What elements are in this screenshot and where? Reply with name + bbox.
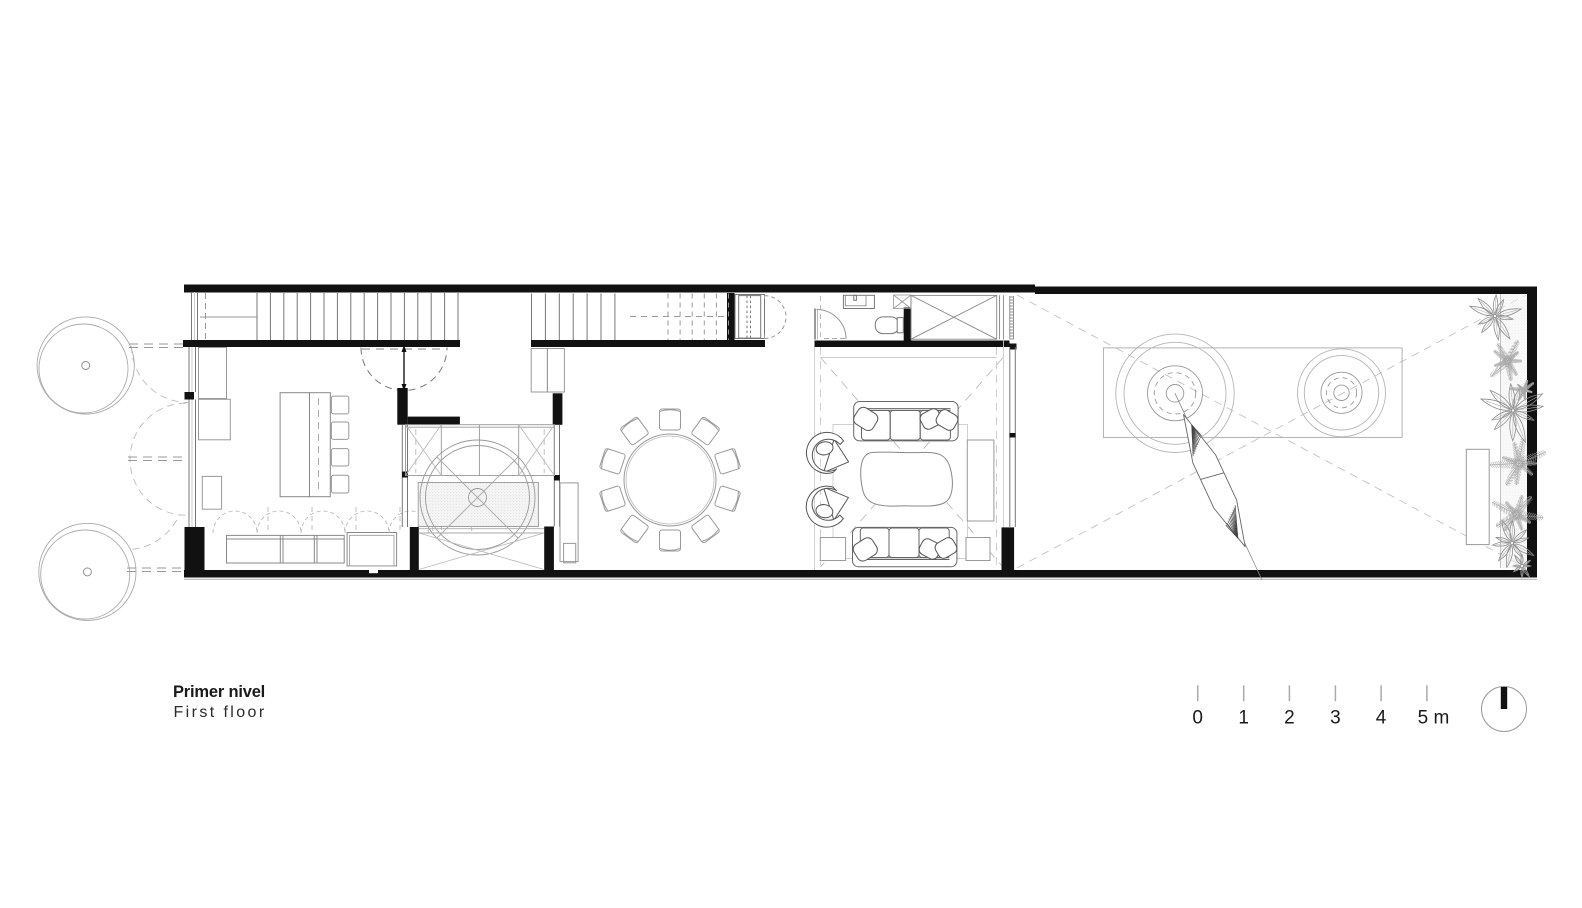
- svg-text:First floor: First floor: [174, 704, 267, 721]
- svg-text:0: 0: [1192, 708, 1203, 729]
- svg-text:3: 3: [1330, 708, 1341, 729]
- svg-text:Primer nivel: Primer nivel: [173, 683, 265, 701]
- svg-text:4: 4: [1376, 708, 1387, 729]
- svg-text:5 m: 5 m: [1418, 708, 1450, 729]
- svg-text:1: 1: [1238, 708, 1249, 729]
- svg-text:2: 2: [1284, 708, 1295, 729]
